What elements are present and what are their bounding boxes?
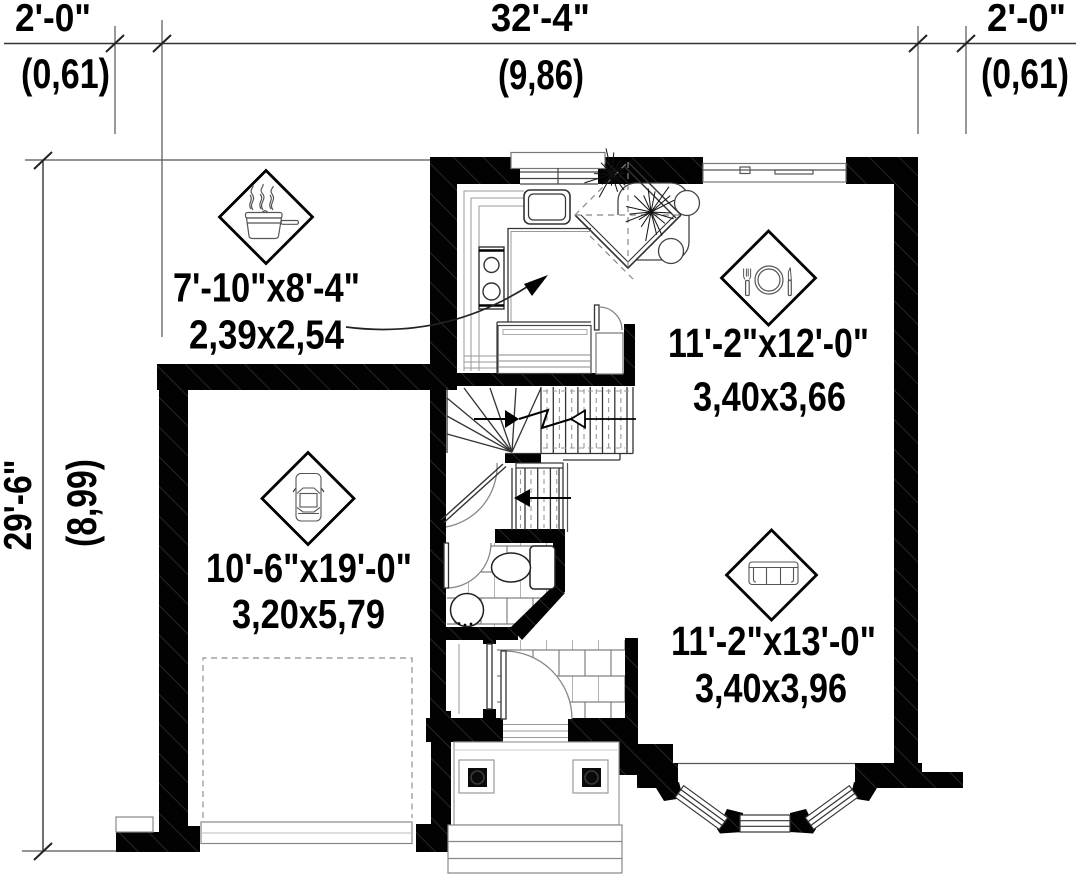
svg-text:(0,61): (0,61) xyxy=(21,50,110,97)
svg-text:2'-0": 2'-0" xyxy=(987,0,1066,40)
svg-text:2'-0": 2'-0" xyxy=(15,0,91,40)
svg-text:3,40x3,96: 3,40x3,96 xyxy=(695,665,847,711)
svg-text:7'-10"x8'-4": 7'-10"x8'-4" xyxy=(173,265,360,311)
svg-text:2,39x2,54: 2,39x2,54 xyxy=(189,312,344,358)
svg-text:11'-2"x12'-0": 11'-2"x12'-0" xyxy=(668,320,869,366)
svg-text:11'-2"x13'-0": 11'-2"x13'-0" xyxy=(671,618,876,664)
svg-text:3,40x3,66: 3,40x3,66 xyxy=(693,374,846,420)
svg-text:32'-4": 32'-4" xyxy=(491,0,590,40)
svg-text:3,20x5,79: 3,20x5,79 xyxy=(232,591,385,637)
svg-text:(9,86): (9,86) xyxy=(498,51,584,98)
svg-text:29'-6": 29'-6" xyxy=(0,460,40,551)
svg-text:10'-6"x19'-0": 10'-6"x19'-0" xyxy=(206,545,412,591)
svg-text:(8,99): (8,99) xyxy=(58,459,105,547)
svg-text:(0,61): (0,61) xyxy=(981,50,1069,97)
